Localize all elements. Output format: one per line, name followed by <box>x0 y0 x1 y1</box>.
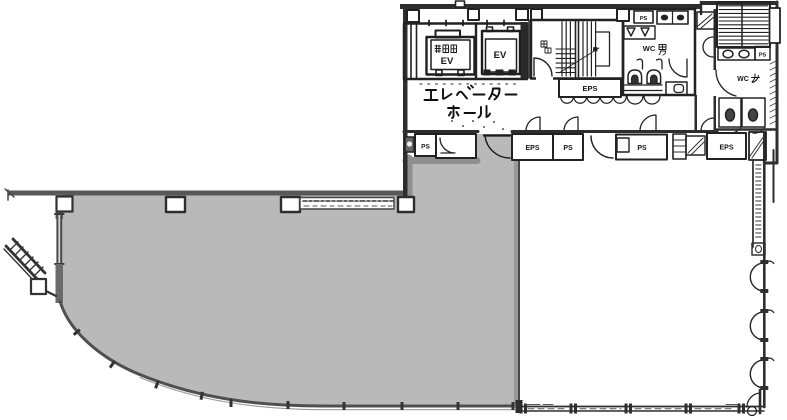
svg-text:PS: PS <box>563 145 573 152</box>
svg-text:EPS: EPS <box>582 84 597 93</box>
svg-text:PS: PS <box>759 53 767 59</box>
svg-text:PS: PS <box>637 145 647 152</box>
svg-text:WC: WC <box>737 76 749 83</box>
svg-text:EPS: EPS <box>525 145 539 152</box>
svg-text:EV: EV <box>494 50 507 61</box>
svg-text:PS: PS <box>421 144 430 151</box>
svg-text:EPS: EPS <box>719 145 733 152</box>
svg-text:EV: EV <box>441 56 454 67</box>
svg-text:WC: WC <box>643 44 656 53</box>
svg-text:PS: PS <box>640 16 648 22</box>
